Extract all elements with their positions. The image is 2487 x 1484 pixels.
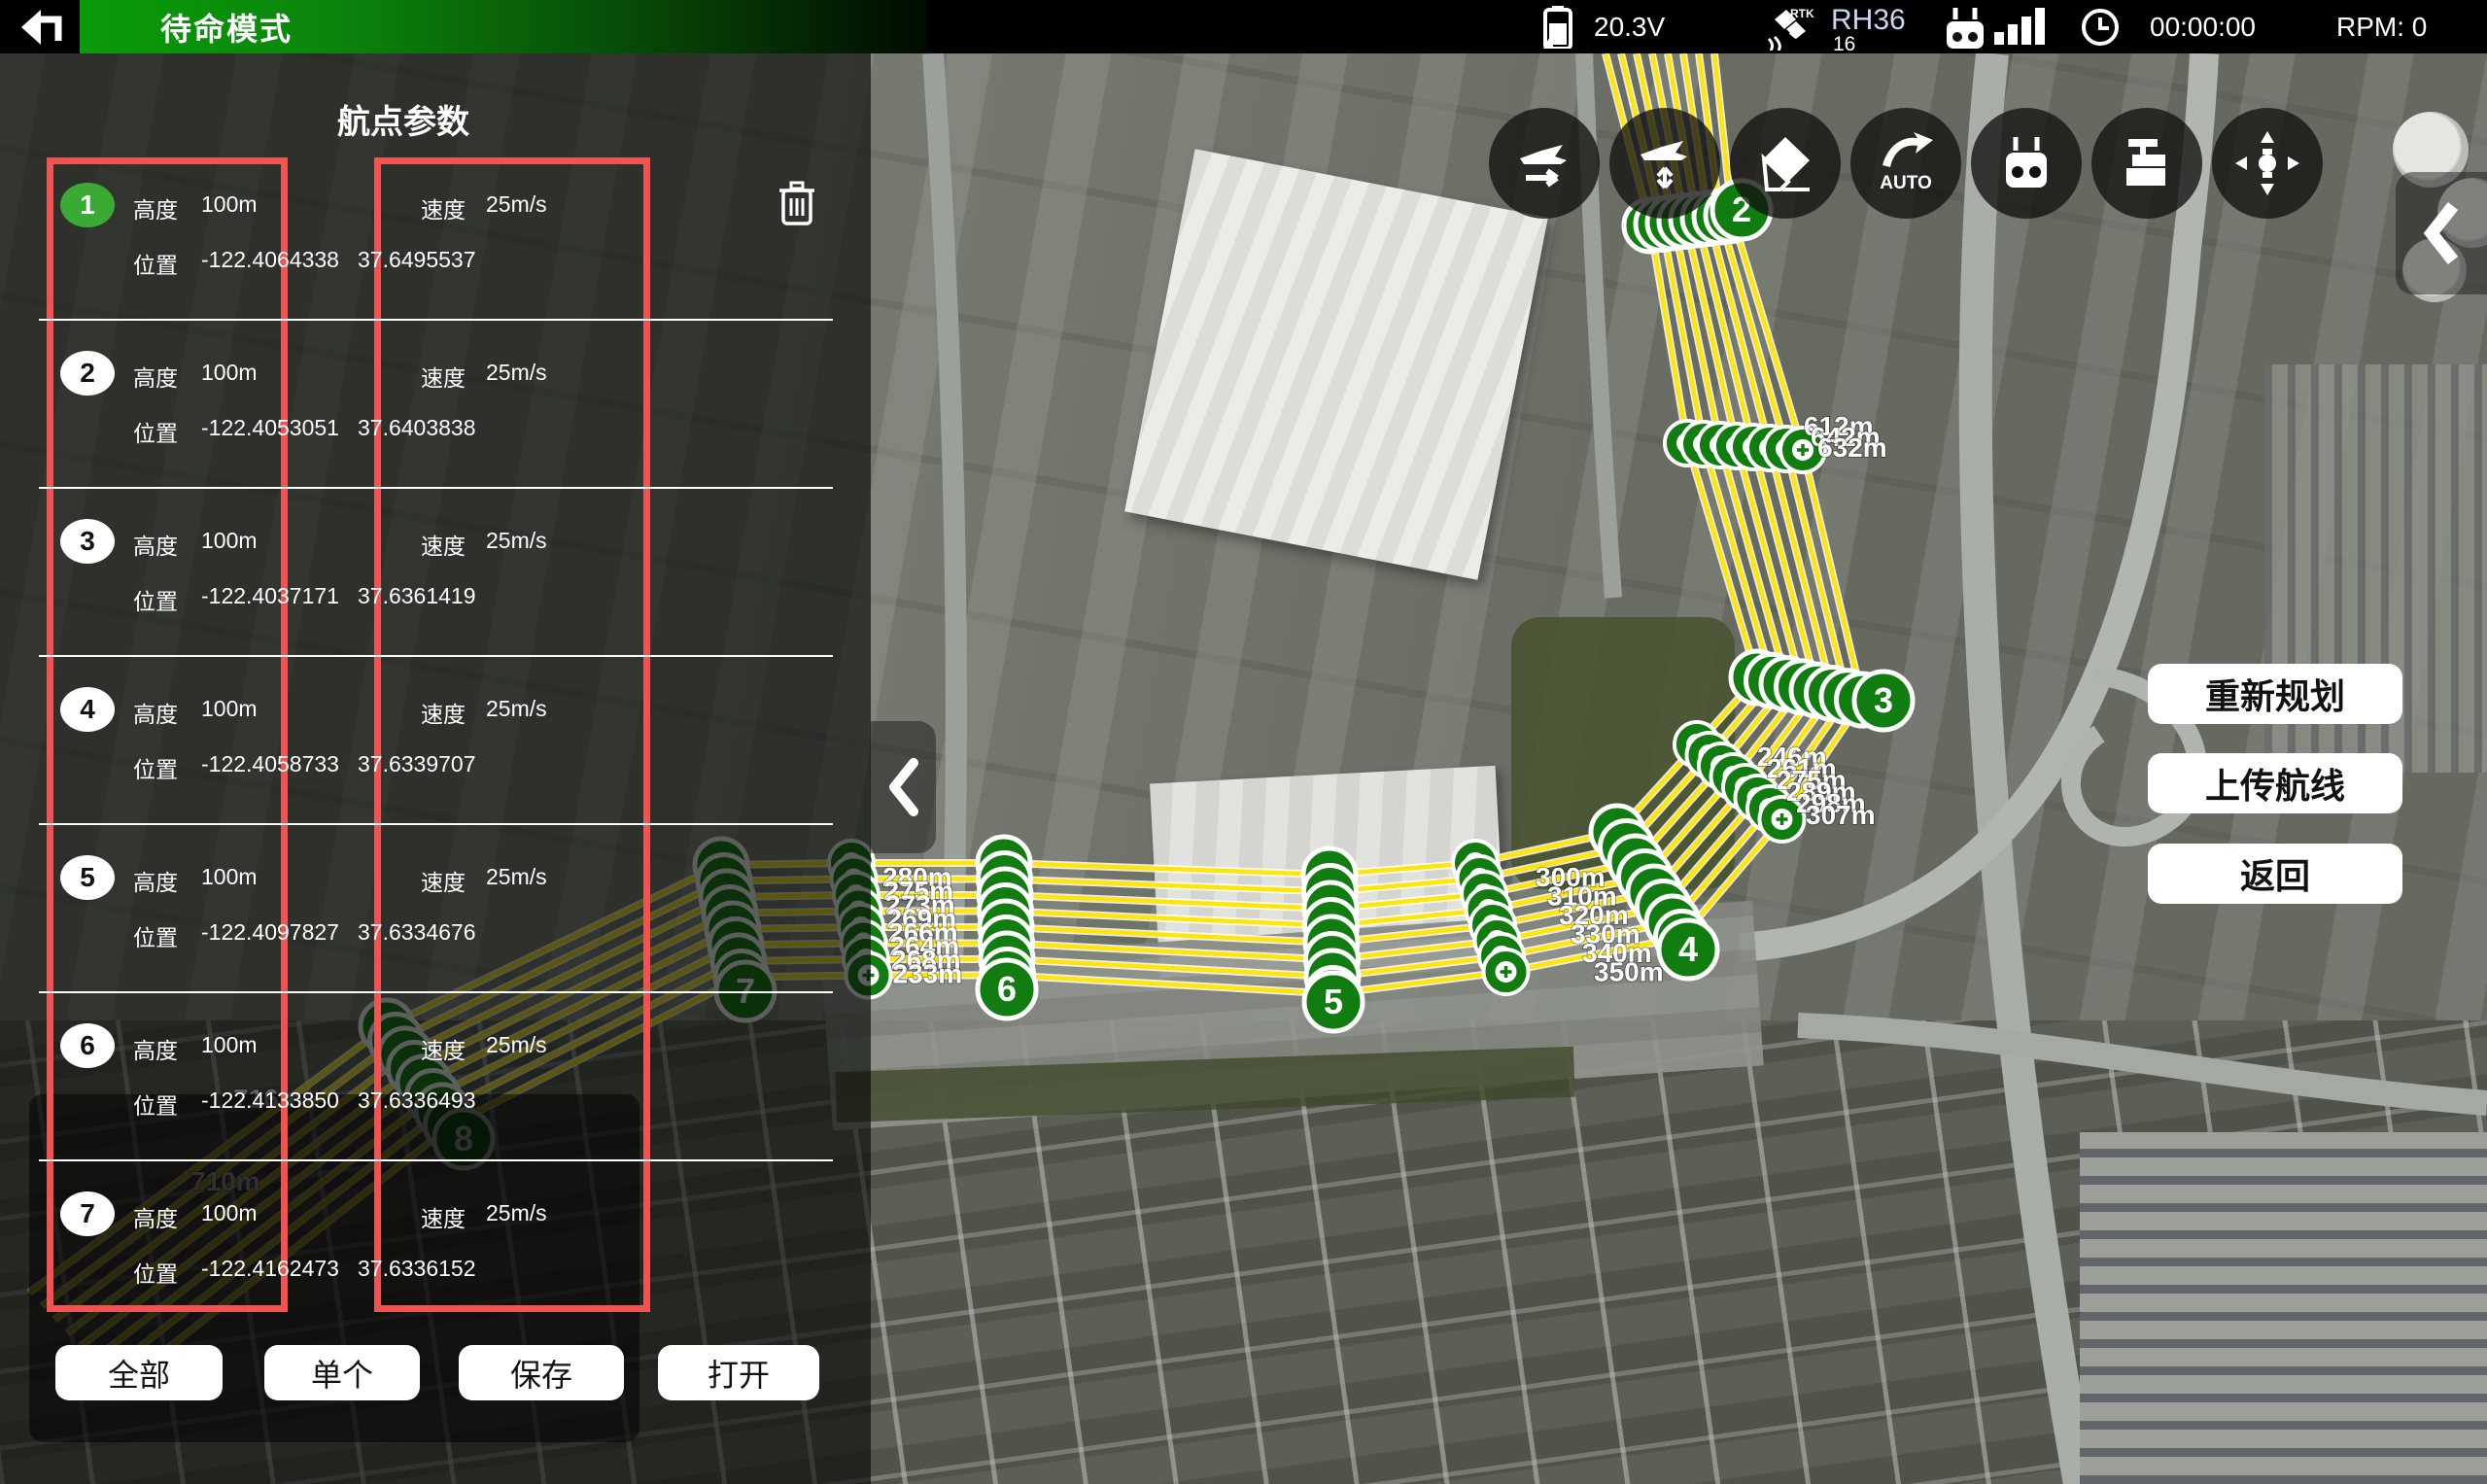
- position-label: 位置: [133, 919, 178, 952]
- eraser-button[interactable]: [1730, 108, 1841, 219]
- speed-value: 25m/s: [486, 1032, 547, 1058]
- speed-value: 25m/s: [486, 360, 547, 386]
- speed-value: 25m/s: [486, 864, 547, 890]
- altitude-value: 100m: [201, 864, 258, 890]
- auto-arrow-icon: [1879, 132, 1933, 171]
- landing-button[interactable]: [1609, 108, 1720, 219]
- speed-value: 25m/s: [486, 528, 547, 554]
- altitude-value: 100m: [201, 191, 258, 218]
- position-label: 位置: [133, 1256, 178, 1289]
- panel-title: 航点参数: [0, 95, 807, 143]
- row-divider: [39, 991, 833, 993]
- landing-icon: [1633, 131, 1697, 195]
- altitude-label: 高度: [133, 696, 178, 729]
- open-button[interactable]: 打开: [658, 1345, 819, 1400]
- waypoint-row[interactable]: 2高度100m速度25m/s位置-122.405305137.6403838: [0, 345, 871, 458]
- waypoint-row[interactable]: 6高度100m速度25m/s位置-122.413385037.6336493: [0, 1018, 871, 1130]
- rtk-name: RH36: [1831, 4, 1906, 37]
- rtk-label: RTK: [1790, 7, 1814, 20]
- waypoint-row[interactable]: 4高度100m速度25m/s位置-122.405873337.6339707: [0, 681, 871, 794]
- pan-arrows-icon: [2233, 129, 2301, 197]
- latitude-value: 37.6339707: [358, 751, 476, 777]
- position-label: 位置: [133, 247, 178, 280]
- latitude-value: 37.6334676: [358, 919, 476, 946]
- save-button[interactable]: 保存: [459, 1345, 624, 1400]
- latitude-value: 37.6336152: [358, 1256, 476, 1282]
- longitude-value: -122.4037171: [201, 583, 339, 609]
- speed-label: 速度: [421, 191, 466, 224]
- waypoint-panel: 航点参数 1高度100m速度25m/s位置-122.406433837.6495…: [0, 0, 871, 1484]
- chevron-left-icon: [2422, 198, 2461, 268]
- takeoff-button[interactable]: [1489, 108, 1600, 219]
- position-label: 位置: [133, 415, 178, 448]
- speed-value: 25m/s: [486, 191, 547, 218]
- waypoint-row[interactable]: 5高度100m速度25m/s位置-122.409782737.6334676: [0, 849, 871, 962]
- waypoint-number-badge[interactable]: 2: [60, 351, 115, 396]
- altitude-value: 100m: [201, 360, 258, 386]
- delete-waypoint-icon[interactable]: [776, 179, 818, 227]
- altitude-label: 高度: [133, 360, 178, 393]
- return-button[interactable]: 返回: [2148, 844, 2402, 904]
- longitude-value: -122.4133850: [201, 1087, 339, 1114]
- row-divider: [39, 655, 833, 657]
- upload-route-button[interactable]: 上传航线: [2148, 753, 2402, 813]
- latitude-value: 37.6495537: [358, 247, 476, 273]
- takeoff-icon: [1512, 131, 1576, 195]
- speed-label: 速度: [421, 1200, 466, 1233]
- longitude-value: -122.4162473: [201, 1256, 339, 1282]
- altitude-value: 100m: [201, 696, 258, 722]
- rtk-satellite-icon: RTK: [1761, 6, 1819, 51]
- waypoint-number-badge[interactable]: 1: [60, 183, 115, 227]
- longitude-value: -122.4053051: [201, 415, 339, 441]
- flight-mode-label: 待命模式: [160, 0, 293, 53]
- speed-value: 25m/s: [486, 696, 547, 722]
- row-divider: [39, 1159, 833, 1161]
- battery-voltage: 20.3V: [1594, 0, 1665, 53]
- eraser-icon: [1753, 131, 1817, 195]
- auto-route-button[interactable]: AUTO: [1850, 108, 1961, 219]
- remote-controller-button[interactable]: [1971, 108, 2082, 219]
- single-button[interactable]: 单个: [264, 1345, 420, 1400]
- all-button[interactable]: 全部: [55, 1345, 223, 1400]
- pan-map-button[interactable]: [2212, 108, 2323, 219]
- row-divider: [39, 319, 833, 321]
- altitude-label: 高度: [133, 528, 178, 561]
- clock-icon: [2080, 7, 2121, 48]
- replan-button[interactable]: 重新规划: [2148, 664, 2402, 724]
- longitude-value: -122.4064338: [201, 247, 339, 273]
- row-divider: [39, 487, 833, 489]
- speed-label: 速度: [421, 360, 466, 393]
- latitude-value: 37.6403838: [358, 415, 476, 441]
- waypoint-number-badge[interactable]: 3: [60, 519, 115, 564]
- waypoint-number-badge[interactable]: 4: [60, 687, 115, 732]
- right-drawer-chevron[interactable]: [2396, 172, 2487, 294]
- speed-label: 速度: [421, 528, 466, 561]
- signal-bars-icon: [1994, 0, 2053, 53]
- position-label: 位置: [133, 583, 178, 616]
- latitude-value: 37.6361419: [358, 583, 476, 609]
- battery-icon: [1539, 6, 1576, 49]
- altitude-label: 高度: [133, 1032, 178, 1065]
- speed-label: 速度: [421, 864, 466, 897]
- map-parking-lot: [2080, 1132, 2487, 1484]
- status-bar: 待命模式 20.3V RTK RH36 16 00:00:00 RPM: 0: [0, 0, 2487, 53]
- panel-collapse-chevron[interactable]: [870, 721, 936, 853]
- altitude-label: 高度: [133, 864, 178, 897]
- waypoint-number-badge[interactable]: 5: [60, 855, 115, 900]
- altitude-label: 高度: [133, 191, 178, 224]
- latitude-value: 37.6336493: [358, 1087, 476, 1114]
- payload-device-icon: [2115, 131, 2179, 195]
- chevron-left-icon: [886, 757, 919, 817]
- position-label: 位置: [133, 751, 178, 784]
- altitude-value: 100m: [201, 528, 258, 554]
- speed-label: 速度: [421, 1032, 466, 1065]
- longitude-value: -122.4058733: [201, 751, 339, 777]
- waypoint-row[interactable]: 7高度100m速度25m/s位置-122.416247337.6336152: [0, 1186, 871, 1298]
- waypoint-number-badge[interactable]: 7: [60, 1191, 115, 1236]
- payload-device-button[interactable]: [2091, 108, 2202, 219]
- longitude-value: -122.4097827: [201, 919, 339, 946]
- flight-time: 00:00:00: [2150, 0, 2256, 53]
- waypoint-row[interactable]: 1高度100m速度25m/s位置-122.406433837.6495537: [0, 177, 871, 290]
- back-icon[interactable]: [19, 8, 70, 47]
- controller-icon: [1940, 6, 1990, 51]
- remote-controller-icon: [1994, 131, 2058, 195]
- altitude-value: 100m: [201, 1200, 258, 1226]
- row-divider: [39, 823, 833, 825]
- altitude-label: 高度: [133, 1200, 178, 1233]
- speed-value: 25m/s: [486, 1200, 547, 1226]
- altitude-value: 100m: [201, 1032, 258, 1058]
- waypoint-row[interactable]: 3高度100m速度25m/s位置-122.403717137.6361419: [0, 513, 871, 626]
- auto-label: AUTO: [1880, 173, 1931, 194]
- waypoint-number-badge[interactable]: 6: [60, 1023, 115, 1068]
- rpm-readout: RPM: 0: [2336, 0, 2427, 53]
- rtk-count: 16: [1833, 33, 1855, 56]
- speed-label: 速度: [421, 696, 466, 729]
- position-label: 位置: [133, 1087, 178, 1121]
